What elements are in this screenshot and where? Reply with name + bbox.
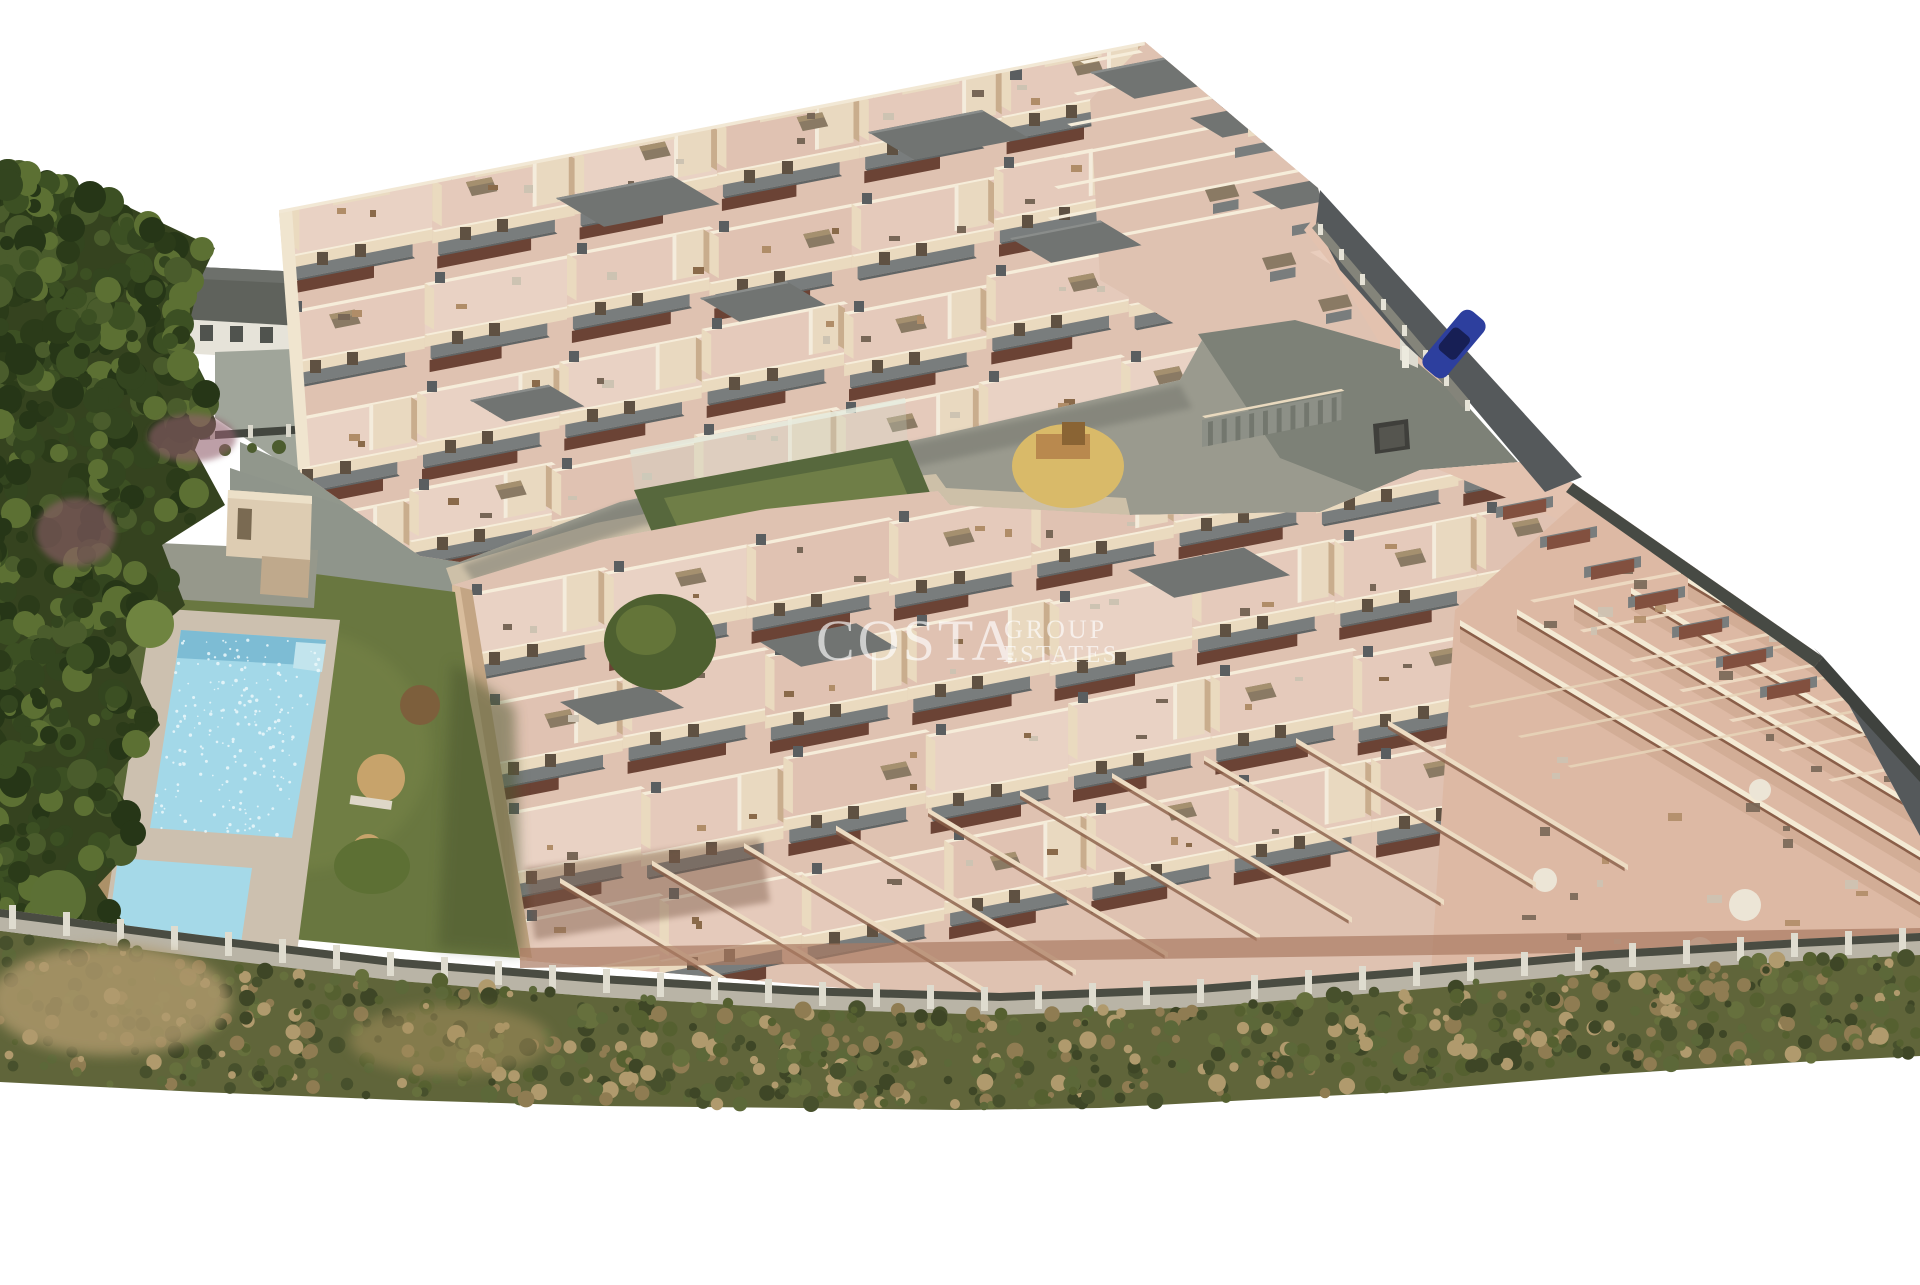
svg-text:GROUP: GROUP xyxy=(1004,615,1107,644)
svg-text:COSTA: COSTA xyxy=(816,608,1017,673)
svg-text:ESTATES: ESTATES xyxy=(1003,642,1119,668)
